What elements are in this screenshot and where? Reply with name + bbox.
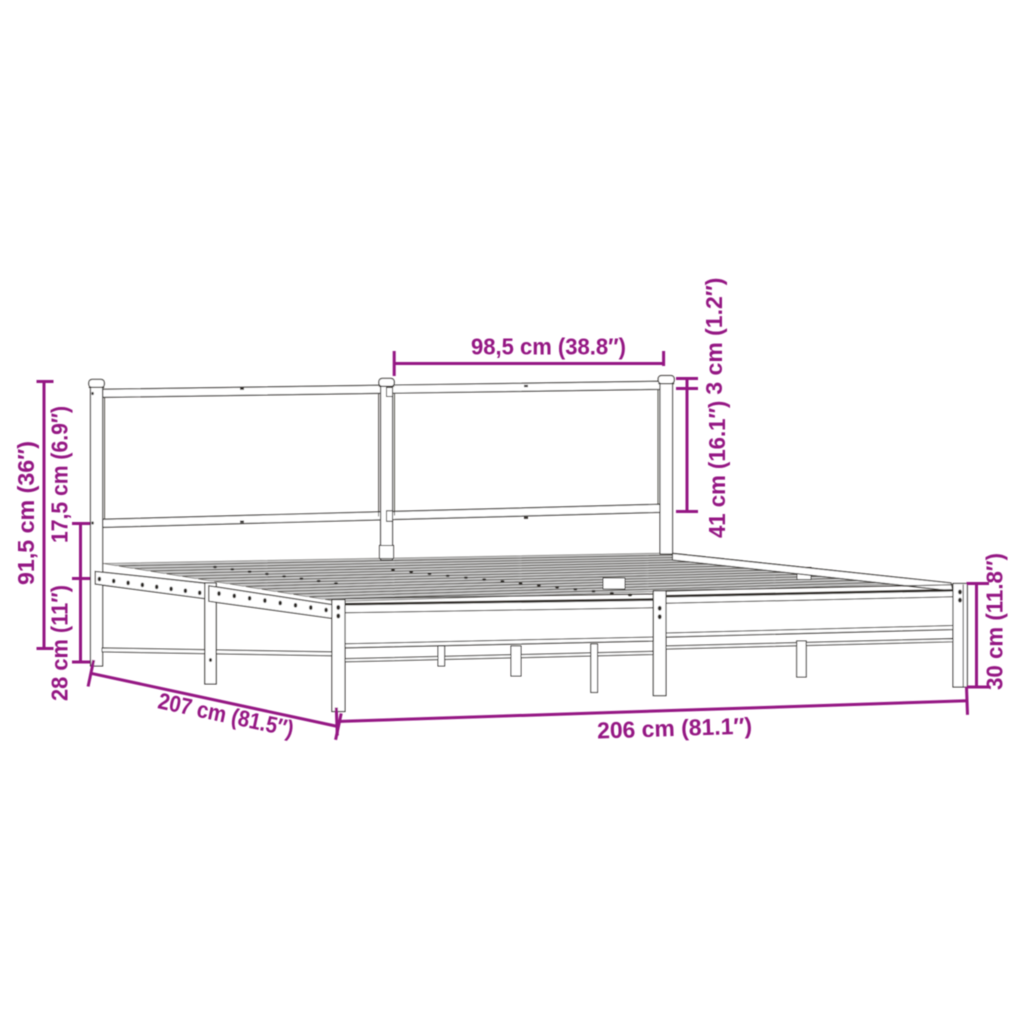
svg-text:41 cm (16.1″): 41 cm (16.1″) [704,401,730,539]
svg-text:30 cm (11.8″): 30 cm (11.8″) [981,553,1007,690]
svg-text:28 cm (11″): 28 cm (11″) [47,585,73,701]
svg-text:98,5 cm (38.8″): 98,5 cm (38.8″) [471,334,626,360]
svg-text:3 cm (1.2″): 3 cm (1.2″) [701,278,727,395]
svg-text:17,5 cm (6.9″): 17,5 cm (6.9″) [47,406,73,543]
svg-text:91,5 cm (36″): 91,5 cm (36″) [13,441,39,585]
svg-text:206 cm (81.1″): 206 cm (81.1″) [597,712,753,743]
